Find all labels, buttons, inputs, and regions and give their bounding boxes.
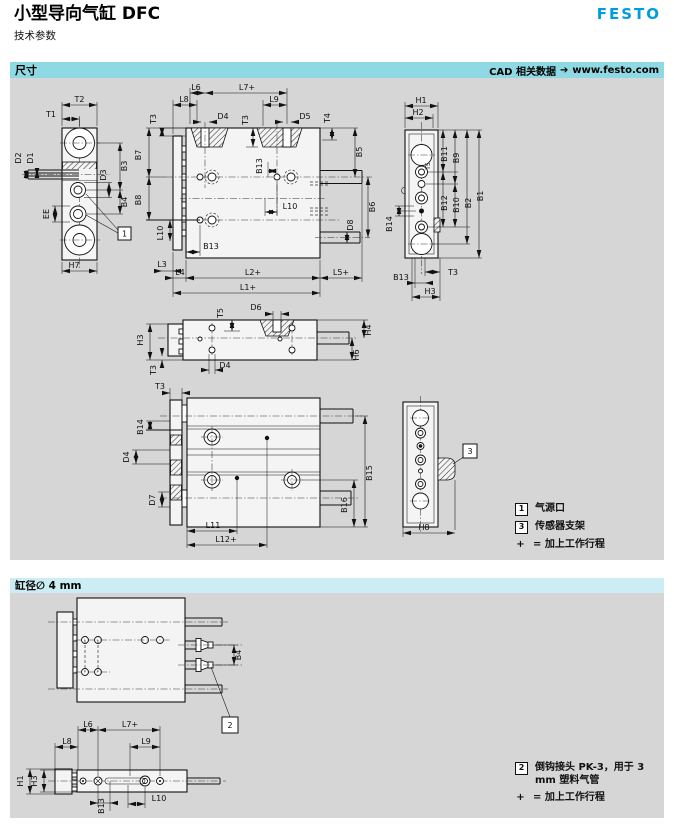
dim-b11: B11 xyxy=(440,146,449,162)
dim-d7: D7 xyxy=(148,494,157,505)
dim-d2: D2 xyxy=(14,152,23,163)
dim-t5-front: T5 xyxy=(216,308,225,319)
dim-b5: B5 xyxy=(355,147,364,158)
dim-b13-bore: B13 xyxy=(97,798,106,814)
legend-item: 2 倒钩接头 PK-3，用于 3 mm 塑料气管 xyxy=(515,761,667,787)
dim-l12: L12+ xyxy=(215,535,236,544)
legend-item-plus: + = 加上工作行程 xyxy=(515,791,667,804)
bore-side-view: L6 L7+ L8 L9 H1 H3 B13 L10 xyxy=(16,720,226,814)
dim-b16: B16 xyxy=(340,497,349,513)
dim-l7-bore: L7+ xyxy=(122,720,138,729)
dim-h3-side: H3 xyxy=(424,287,435,296)
dim-l10-bore: L10 xyxy=(152,794,167,803)
title-block: 小型导向气缸 DFC 技术参数 xyxy=(14,5,160,43)
dim-d3: D3 xyxy=(99,169,108,180)
legend-text-1: 气源口 xyxy=(535,502,565,515)
dim-b1: B1 xyxy=(476,191,485,202)
dim-h1: H1 xyxy=(415,96,426,105)
legend-ref-2: 2 xyxy=(515,762,528,775)
dim-t3-mid: T3 xyxy=(241,115,250,126)
legend-bore: 2 倒钩接头 PK-3，用于 3 mm 塑料气管 + = 加上工作行程 xyxy=(515,761,667,808)
side-view: T5 H1 H2 B11 B12 B9 B10 B2 B1 xyxy=(385,96,485,301)
dim-h3-front: H3 xyxy=(136,334,145,345)
dim-h6: H6 xyxy=(352,349,361,360)
dim-b13-side: B13 xyxy=(393,273,409,282)
legend-ref-1: 1 xyxy=(515,503,528,516)
dim-b3: B3 xyxy=(120,161,129,172)
dim-b14-side: B14 xyxy=(385,216,394,232)
section-bar-dimensions: 尺寸 CAD 相关数据 ➔ www.festo.com xyxy=(10,62,664,78)
callout-1: 1 xyxy=(122,230,127,239)
legend-text-2: 倒钩接头 PK-3，用于 3 mm 塑料气管 xyxy=(535,761,667,787)
dim-d1: D1 xyxy=(26,152,35,163)
bore-top-view: B4 2 xyxy=(48,598,243,733)
page-title: 小型导向气缸 DFC xyxy=(14,5,160,24)
dim-t3-guide: T3 xyxy=(154,382,165,391)
dim-d8: D8 xyxy=(346,219,355,230)
dim-h3-bore: H3 xyxy=(30,775,39,786)
end-view: T2 T1 D2 D1 xyxy=(14,95,131,274)
dim-h4: H4 xyxy=(364,324,373,335)
dim-b4: B4 xyxy=(120,197,129,208)
dim-l4: L4 xyxy=(175,268,185,277)
legend-item-plus: + = 加上工作行程 xyxy=(515,538,667,551)
dimensions-drawing-panel: T2 T1 D2 D1 xyxy=(10,78,664,560)
legend-plus-text: = 加上工作行程 xyxy=(533,791,605,804)
dim-h1-bore: H1 xyxy=(16,775,25,786)
dim-l3: L3 xyxy=(157,260,167,269)
dim-b7: B7 xyxy=(134,150,143,161)
section-bar-bore: 缸径∅ 4 mm xyxy=(10,578,664,593)
dim-l9: L9 xyxy=(269,95,279,104)
legend-plus-sign: + xyxy=(515,791,526,804)
datasheet-page: 小型导向气缸 DFC 技术参数 FESTO 尺寸 CAD 相关数据 ➔ www.… xyxy=(0,0,674,828)
festo-logo: FESTO xyxy=(597,5,661,23)
dim-l8-bore: L8 xyxy=(62,737,72,746)
dim-b6: B6 xyxy=(368,202,377,213)
dim-d5: D5 xyxy=(299,112,310,121)
top-view: L6 L7+ L8 L9 D4 D5 T3 T3 T4 B5 B6 xyxy=(134,83,377,297)
dim-l6-bore: L6 xyxy=(83,720,93,729)
dim-b15: B15 xyxy=(365,465,374,481)
dim-d4-guide: D4 xyxy=(122,451,131,462)
dim-t5-side: T5 xyxy=(425,162,432,171)
section-title-dimensions: 尺寸 xyxy=(15,62,37,78)
dim-t1: T1 xyxy=(45,110,56,119)
dim-b4-bore: B4 xyxy=(234,650,243,661)
dim-t2: T2 xyxy=(74,95,85,104)
legend-plus-sign: + xyxy=(515,538,526,551)
dim-l10-left: L10 xyxy=(156,226,165,241)
dim-b13-mid: B13 xyxy=(255,158,264,174)
dim-t3-side: T3 xyxy=(447,268,458,277)
dim-d6: D6 xyxy=(250,303,261,312)
callout-2: 2 xyxy=(227,721,232,730)
bore-drawing-panel: B4 2 L6 L7+ L8 xyxy=(10,593,664,818)
dim-l1: L1+ xyxy=(240,283,256,292)
dim-l8: L8 xyxy=(179,95,189,104)
dim-d4-front: D4 xyxy=(219,361,230,370)
legend-item: 3 传感器支架 xyxy=(515,520,667,534)
dim-b2: B2 xyxy=(464,198,473,209)
dim-l11: L11 xyxy=(206,521,221,530)
dim-b8: B8 xyxy=(134,195,143,206)
dim-t3-front: T3 xyxy=(149,365,158,376)
legend-item: 1 气源口 xyxy=(515,502,667,516)
dimensions-drawing: T2 T1 D2 D1 xyxy=(10,78,664,560)
dim-h7: H7 xyxy=(68,261,79,270)
dim-l2: L2+ xyxy=(245,268,261,277)
callout-3: 3 xyxy=(467,447,472,456)
dim-t3-left: T3 xyxy=(149,114,158,125)
cad-data-note: CAD 相关数据 ➔ www.festo.com xyxy=(489,63,659,78)
page-header: 小型导向气缸 DFC 技术参数 FESTO xyxy=(14,5,661,43)
dim-t4: T4 xyxy=(323,113,332,124)
dim-h2: H2 xyxy=(412,108,423,117)
guide-view: T3 B14 D4 D7 L11 L12+ B15 B16 xyxy=(122,382,374,548)
dim-l7: L7+ xyxy=(239,83,255,92)
legend-text-3: 传感器支架 xyxy=(535,520,585,533)
dim-l5: L5+ xyxy=(333,268,349,277)
dim-b10: B10 xyxy=(452,197,461,213)
dim-d4: D4 xyxy=(217,112,228,121)
dim-l6: L6 xyxy=(191,83,201,92)
dim-ee: EE xyxy=(42,209,51,219)
sensor-bracket-view: 3 H8 xyxy=(403,396,477,537)
dim-l10-mid: L10 xyxy=(283,202,298,211)
dim-b12: B12 xyxy=(440,195,449,211)
legend-ref-3: 3 xyxy=(515,521,528,534)
page-subtitle: 技术参数 xyxy=(14,28,160,43)
arrow-right-icon: ➔ xyxy=(560,65,568,76)
dim-b14-guide: B14 xyxy=(136,419,145,435)
legend-dimensions: 1 气源口 3 传感器支架 + = 加上工作行程 xyxy=(515,502,667,555)
dim-l9-bore: L9 xyxy=(141,737,151,746)
dim-b9: B9 xyxy=(452,153,461,164)
cad-note-text: CAD 相关数据 xyxy=(489,63,556,78)
section-title-bore: 缸径∅ 4 mm xyxy=(15,578,82,593)
cad-link[interactable]: www.festo.com xyxy=(572,65,659,76)
dim-b13-bottom: B13 xyxy=(203,242,219,251)
dim-h8: H8 xyxy=(418,523,429,532)
front-view: D6 T5 H3 T3 D4 H4 H6 xyxy=(136,303,373,376)
legend-plus-text: = 加上工作行程 xyxy=(533,538,605,551)
